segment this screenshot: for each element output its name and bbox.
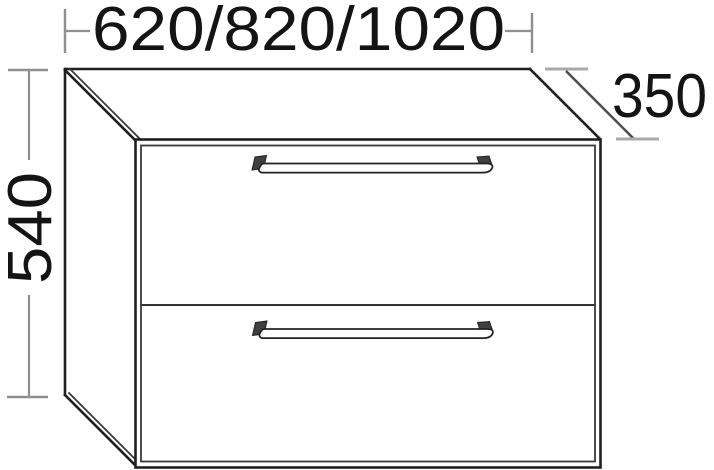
- cabinet-body: [65, 69, 601, 468]
- width-dimension-label: 620/820/1020: [92, 0, 505, 64]
- cabinet-top-left-diagonal-inner: [70, 69, 140, 139]
- height-dimension-label: 540: [0, 172, 65, 284]
- cabinet-dimension-diagram: 620/820/1020 540 350: [0, 0, 714, 470]
- depth-dimension-label: 350: [612, 62, 707, 131]
- depth-dimension: 350: [545, 62, 707, 139]
- technical-drawing-canvas: 620/820/1020 540 350: [0, 0, 714, 470]
- cabinet-top-right-diagonal: [530, 69, 600, 139]
- cabinet-bottom-left-diagonal-outer: [65, 395, 136, 466]
- cabinet-bottom-left-diagonal-inner: [69, 393, 139, 463]
- cabinet-front-face: [136, 140, 601, 468]
- width-dimension: 620/820/1020: [65, 0, 532, 64]
- height-dimension: 540: [0, 70, 65, 397]
- cabinet-top-left-diagonal-outer: [65, 70, 136, 141]
